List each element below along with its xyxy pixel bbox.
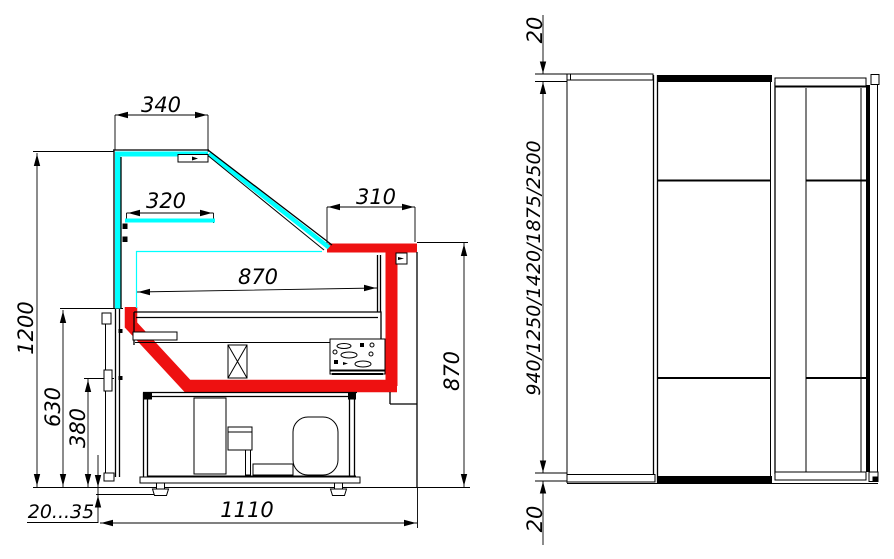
slanted-glass-panel (209, 154, 329, 248)
dim-label-20-bottom: 20 (523, 506, 547, 533)
deck-left-step (133, 332, 177, 340)
front-kick-bracket (104, 473, 114, 481)
technical-drawing-canvas: 340 320 310 870 870 1200 630 380 20...35… (0, 0, 894, 559)
foot-stem (335, 483, 343, 489)
liner-canopy-red (327, 244, 417, 253)
box-support (246, 450, 251, 475)
foot-stem (157, 483, 165, 489)
side-section-view: 340 320 310 870 870 1200 630 380 20...35… (14, 93, 470, 528)
dim-label-630: 630 (41, 387, 65, 427)
dim-label-20-top: 20 (523, 17, 547, 44)
terminal-box (330, 339, 385, 374)
dim-label-320: 320 (146, 189, 186, 213)
dim-label-340: 340 (141, 93, 181, 117)
front-glass-panel (115, 152, 121, 309)
top-right-corner-block (871, 75, 879, 85)
plan-view-dimensions: 20 940/1250/1420/1875/2500 20 (523, 15, 567, 545)
shelf-bracket-2 (123, 237, 128, 243)
bottom-band-right (775, 472, 866, 480)
display-case-drawing: 340 320 310 870 870 1200 630 380 20...35… (0, 0, 894, 559)
dim-label-1200: 1200 (14, 301, 38, 354)
shelf-bracket-1 (123, 224, 128, 230)
glass-assembly (115, 152, 329, 309)
dim-label-length-options: 940/1250/1420/1875/2500 (523, 140, 545, 395)
dim-label-380: 380 (66, 408, 90, 448)
front-bumper-rail (104, 370, 112, 391)
foot-base (153, 489, 169, 496)
base-plate (140, 477, 360, 483)
frame-corner-left (144, 393, 152, 400)
bottom-band-left (567, 475, 655, 483)
liner-back-wall-red (386, 252, 398, 386)
glass-shelf (125, 219, 215, 223)
divider-panel (194, 398, 226, 474)
panel-joint-lines (658, 181, 870, 379)
machine-compartment (140, 393, 360, 496)
dim-label-1110: 1110 (220, 498, 273, 522)
panel-mark-2 (119, 376, 123, 380)
drain-tray (253, 464, 293, 475)
dim-label-310: 310 (356, 185, 396, 209)
slant-lower-edge (206, 154, 324, 250)
plan-thin-verticals (567, 74, 878, 483)
dim-label-870-deck: 870 (238, 265, 278, 289)
adjustable-foot-left (153, 483, 169, 496)
terminal-dot-1 (360, 343, 364, 347)
top-band-middle (657, 75, 772, 82)
plan-view: 20 940/1250/1420/1875/2500 20 (523, 15, 879, 545)
terminal-dot-2 (334, 360, 338, 364)
dim-label-870-height: 870 (440, 351, 464, 391)
plan-divider-pair-1 (654, 75, 658, 483)
bottom-right-corner-fill (873, 477, 879, 482)
adjustable-foot-right (331, 483, 347, 496)
condensate-box (228, 427, 252, 450)
frame-corner-right (348, 393, 356, 400)
compressor (293, 417, 338, 475)
front-bracket-upper (102, 313, 111, 324)
plan-view-structure (567, 74, 879, 484)
display-volume-outline (137, 252, 323, 309)
panel-mark-1 (119, 329, 123, 333)
dim-label-leg-adjust: 20...35 (28, 501, 94, 523)
foot-base (331, 489, 347, 496)
top-band-left (567, 74, 653, 80)
bottom-band-middle (657, 476, 772, 483)
